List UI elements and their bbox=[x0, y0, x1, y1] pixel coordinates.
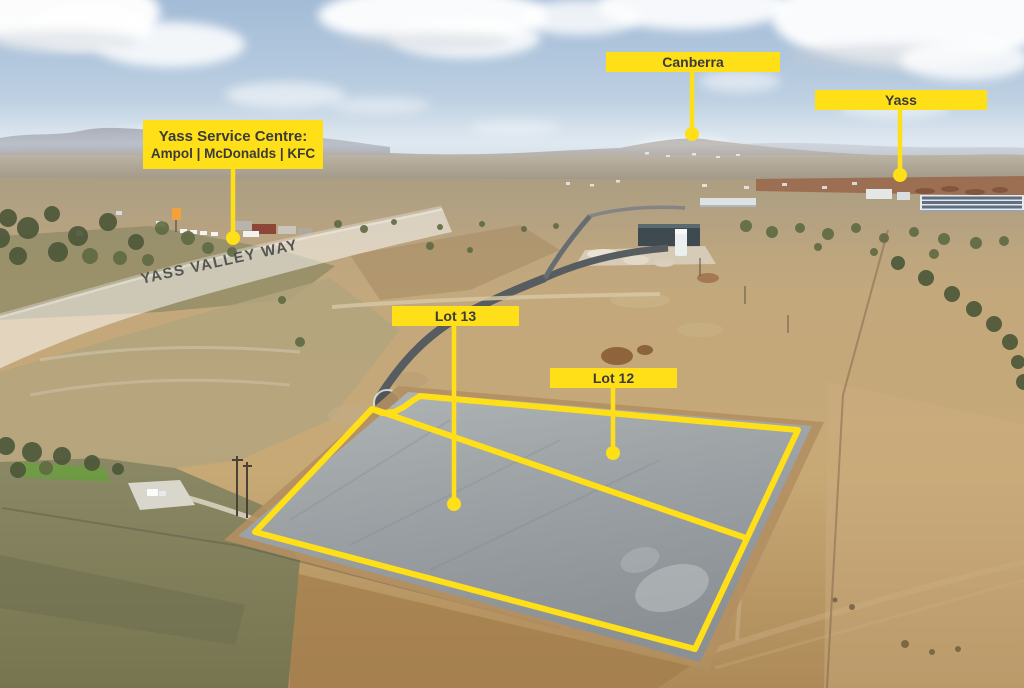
lot-12-label: Lot 12 bbox=[550, 368, 677, 388]
canberra-label: Canberra bbox=[606, 52, 780, 72]
yass-label: Yass bbox=[815, 90, 987, 110]
aerial-photo: Canberra Yass Yass Service Centre: Ampol… bbox=[0, 0, 1024, 688]
canberra-label-text: Canberra bbox=[662, 55, 723, 69]
service-centre-subtitle: Ampol | McDonalds | KFC bbox=[151, 147, 315, 161]
fuel-sign bbox=[172, 208, 181, 220]
lot-12-label-text: Lot 12 bbox=[593, 371, 634, 385]
parked-vehicle bbox=[147, 489, 158, 496]
service-centre-title: Yass Service Centre: bbox=[159, 129, 307, 144]
service-centre-label: Yass Service Centre: Ampol | McDonalds |… bbox=[143, 120, 323, 169]
lot-13-label: Lot 13 bbox=[392, 306, 519, 326]
yass-label-text: Yass bbox=[885, 93, 917, 107]
lot-13-label-text: Lot 13 bbox=[435, 309, 476, 323]
